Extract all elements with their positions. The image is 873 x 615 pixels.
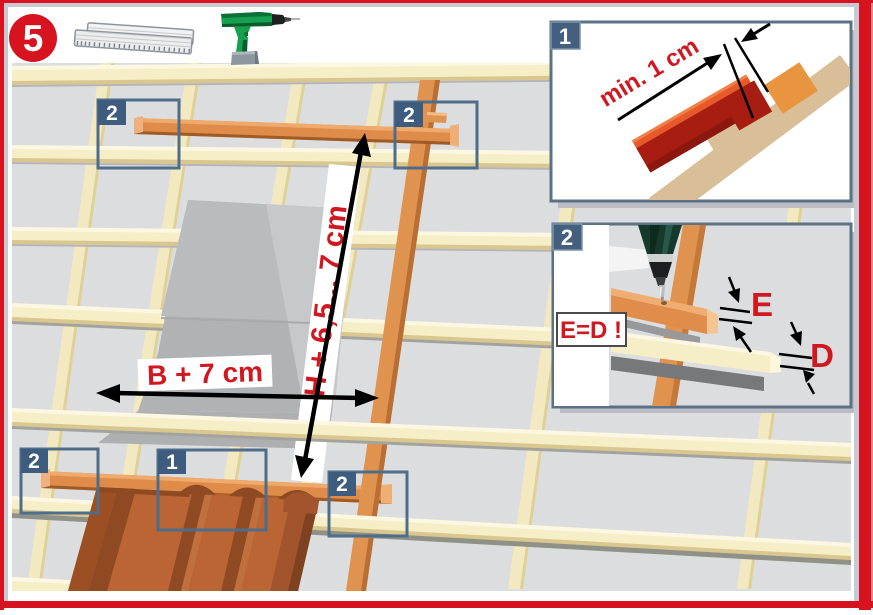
svg-text:D: D [810,337,834,374]
svg-text:2: 2 [28,450,40,473]
svg-text:E: E [751,286,773,323]
svg-text:2: 2 [403,104,415,127]
svg-text:1: 1 [166,451,178,474]
svg-text:2: 2 [106,102,118,125]
svg-text:2: 2 [336,473,348,496]
svg-text:E=D !: E=D ! [560,317,622,344]
svg-text:B + 7 cm: B + 7 cm [147,356,264,391]
svg-text:5: 5 [23,18,44,59]
svg-text:1: 1 [559,24,571,49]
svg-text:2: 2 [561,225,573,250]
